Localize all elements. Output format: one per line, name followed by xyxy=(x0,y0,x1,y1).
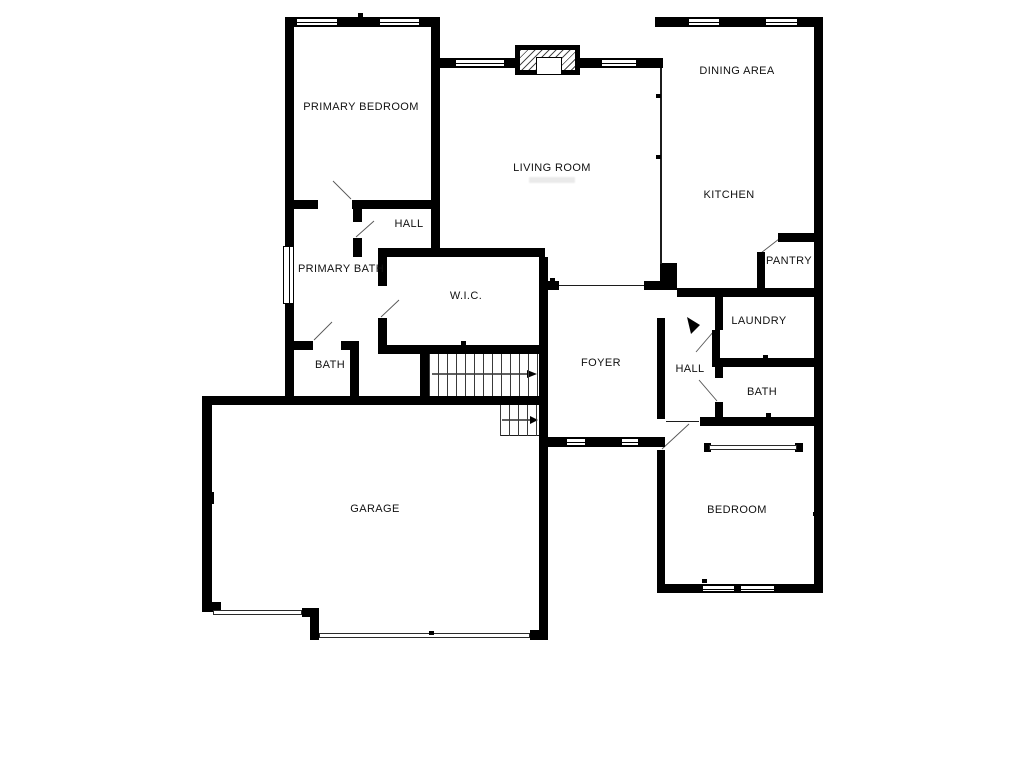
garage-door-line xyxy=(319,633,530,638)
wall xyxy=(387,248,545,257)
wall xyxy=(202,492,214,504)
room-label-laundry: LAUNDRY xyxy=(731,315,786,327)
dimension-tick xyxy=(766,413,771,417)
closet-door-line xyxy=(709,445,797,450)
room-label-wic: W.I.C. xyxy=(450,290,482,302)
wall xyxy=(778,233,822,242)
room-label-bath-left: BATH xyxy=(315,359,345,371)
window-icon xyxy=(296,18,338,26)
window-icon xyxy=(455,59,505,67)
dimension-tick xyxy=(763,355,768,359)
staircase-lower xyxy=(500,405,539,436)
dimension-tick xyxy=(286,333,291,337)
wall xyxy=(530,630,548,640)
room-label-hall-right: HALL xyxy=(675,363,704,375)
dimension-tick xyxy=(702,579,707,583)
room-label-bedroom: BEDROOM xyxy=(707,504,767,516)
window-icon xyxy=(740,585,775,592)
room-label-bath-right: BATH xyxy=(747,386,777,398)
wall xyxy=(285,200,318,209)
bedroom-door-swing xyxy=(662,424,689,449)
dimension-tick xyxy=(599,437,604,441)
wall xyxy=(644,281,660,290)
wall xyxy=(757,252,765,288)
wall xyxy=(657,318,665,419)
wall xyxy=(715,367,723,378)
window-icon xyxy=(702,585,735,592)
room-label-dining-area: DINING AREA xyxy=(699,65,774,77)
bath-left-door-swing xyxy=(314,322,332,340)
wall xyxy=(353,238,362,257)
wall xyxy=(712,330,720,358)
dimension-tick xyxy=(656,94,661,98)
wall xyxy=(677,288,822,297)
wall xyxy=(715,297,723,330)
wall xyxy=(378,318,387,354)
wic-door-swing xyxy=(381,300,399,317)
wall xyxy=(285,17,294,246)
primary-bath-door-swing xyxy=(356,221,374,237)
wall xyxy=(353,209,362,222)
window-icon xyxy=(566,438,586,446)
room-label-foyer: FOYER xyxy=(581,357,621,369)
window-icon xyxy=(601,59,637,67)
wall xyxy=(431,17,440,248)
dimension-tick xyxy=(461,341,466,345)
room-label-living-room: LIVING ROOM xyxy=(513,162,591,174)
window-icon xyxy=(379,18,420,26)
dimension-tick xyxy=(429,631,434,635)
staircase-main xyxy=(429,354,539,396)
room-label-primary-bath: PRIMARY BATH xyxy=(298,263,384,275)
wall xyxy=(814,17,823,593)
wall xyxy=(712,358,822,367)
fireplace-opening xyxy=(536,57,562,75)
wall xyxy=(387,345,540,354)
bath-door-swing xyxy=(699,380,717,401)
wall xyxy=(700,417,822,426)
window-icon xyxy=(688,18,720,26)
room-label-garage: GARAGE xyxy=(350,503,399,515)
wall xyxy=(202,396,548,405)
room-label-hall-primary: HALL xyxy=(394,218,423,230)
front-threshold-line xyxy=(666,421,699,422)
faded-dimension-text xyxy=(529,177,575,183)
dimension-tick xyxy=(550,278,555,282)
wall xyxy=(285,304,294,405)
dimension-tick xyxy=(813,512,818,516)
wall xyxy=(285,341,313,350)
garage-door-line xyxy=(213,610,302,615)
window-icon xyxy=(283,246,294,304)
dimension-tick xyxy=(358,13,363,17)
window-icon xyxy=(621,438,639,446)
wall xyxy=(545,281,559,290)
pantry-door-swing xyxy=(761,239,779,253)
cased-opening-line xyxy=(559,285,644,286)
wall xyxy=(539,437,548,640)
primary-bedroom-door-swing xyxy=(333,181,351,199)
room-label-kitchen: KITCHEN xyxy=(703,189,754,201)
hall-door-leaf xyxy=(687,317,700,334)
window-icon xyxy=(765,18,798,26)
wall xyxy=(302,608,319,617)
wall xyxy=(660,263,677,290)
wall xyxy=(657,450,665,592)
room-label-pantry: PANTRY xyxy=(766,255,812,267)
wall xyxy=(352,200,440,209)
floor-plan: PRIMARY BEDROOMLIVING ROOMDINING AREAKIT… xyxy=(0,0,1024,768)
room-label-primary-bedroom: PRIMARY BEDROOM xyxy=(303,101,419,113)
dimension-tick xyxy=(656,155,661,159)
